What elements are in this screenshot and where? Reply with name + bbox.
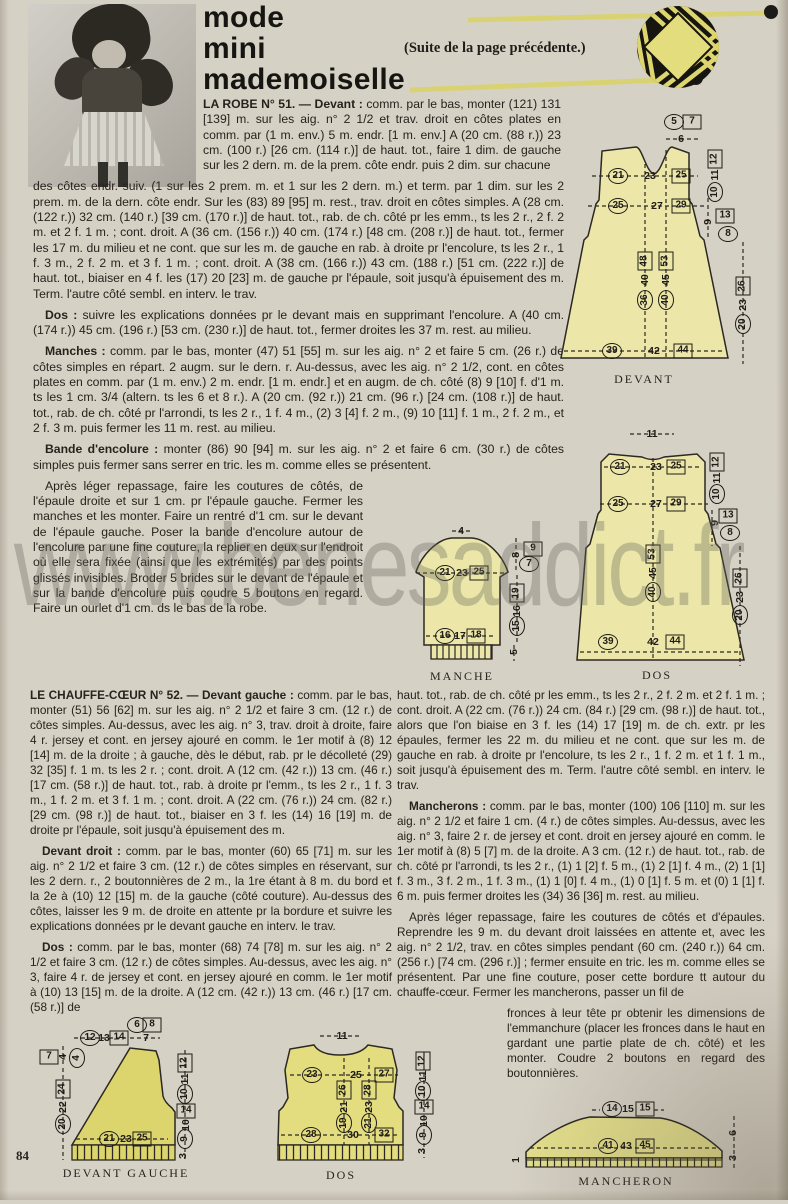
diagram-measure: 27 [651,200,663,212]
diagram-measure: 43 [620,1140,632,1152]
diagram-measure: 44 [666,635,685,650]
diagram-measure: 12 [80,1030,100,1046]
paragraph-chauffe-finition: Après léger repassage, faire les couture… [397,910,765,1000]
diagram-measure: 39 [602,343,622,359]
diagram-measure: 14 [602,1101,622,1117]
diagram-measure: 4 [458,525,464,537]
diagram-measure: 19 [510,584,525,603]
diagram-measure: 27 [375,1068,394,1083]
paragraph-chauffe-mancherons: Mancherons : comm. par le bas, monter (1… [397,799,765,904]
diagram-measure: 26 [733,569,748,588]
diagram-measure: 39 [598,634,618,650]
chauffe-heading: LE CHAUFFE-CŒUR N° 52. — Devant gauche : [30,688,294,702]
diagram-measure: 22 [57,1101,69,1113]
diagram-measure: 41 [598,1138,618,1154]
diagram-measure: 20 [732,605,748,625]
diagram-measure: 10 [415,1081,431,1101]
diagram-measure: 25 [470,566,489,581]
diagram-measure: 7 [519,556,539,572]
diagram-measure: 9 [524,542,543,557]
schema-chauffe-dos: DOS 112325272621192823212830321211101410… [248,1012,482,1204]
diagram-measure: 3 [727,1155,739,1161]
diagram-measure: 42 [647,636,659,648]
diagram-measure: 13 [716,209,735,224]
diagram-measure: 23 [644,170,656,182]
paragraph-chauffe-dos: Dos : comm. par le bas, monter (68) 74 [… [30,940,392,1015]
paragraph-chauffe-devant-droit: Devant droit : comm. par le bas, monter … [30,844,392,934]
diagram-measure: 23 [734,591,746,603]
photo-girl-face [92,40,126,70]
schema-chauffe-mancheron: MANCHERON 141515414345631 [488,1076,788,1196]
schema-caption: DOS [326,1168,356,1183]
diagram-measure: 10 [707,182,723,202]
diagram-measure: 13 [719,509,738,524]
diagram-measure: 23 [302,1067,322,1083]
diagram-measure: 25 [667,460,686,475]
paragraph-robe-devant-suite: des côtes endr. suiv. (1 sur les 2 prem.… [33,179,564,301]
diagram-measure: 28 [362,1081,377,1100]
diagram-measure: 25 [350,1069,362,1081]
diagram-measure: 3 [416,1148,428,1154]
diagram-measure: 4 [69,1048,85,1068]
diagram-measure: 11 [336,1030,347,1042]
page-title: mode mini mademoiselle [203,2,405,95]
paragraph-chauffe-devant-gauche: LE CHAUFFE-CŒUR N° 52. — Devant gauche :… [30,688,392,838]
diagram-measure: 9 [702,219,714,225]
diagram-measure: 12 [708,150,723,169]
diagram-measure: 21 [610,459,630,475]
diagram-measure: 15 [636,1102,655,1117]
paragraph-chauffe-finition-suite: fronces à leur tête pr obtenir les dimen… [507,1006,765,1081]
diagram-measure: 40 [645,582,661,602]
diagram-measure: 45 [647,567,659,579]
diagram-measure: 48 [638,252,653,271]
diagram-measure: 1 [510,1157,522,1163]
diagram-measure: 10 [177,1084,193,1104]
schema-caption: DOS [642,668,672,683]
title-line: mini [203,33,405,64]
diagram-measure: 21 [99,1131,119,1147]
paragraph-robe-dos: Dos : suivre les explications données pr… [33,308,564,339]
diagram-measure: 11 [179,1073,191,1084]
diagram-measure: 15 [509,616,525,636]
diagram-measure: 20 [735,314,751,334]
diagram-measure: 25 [608,198,628,214]
diagram-measure: 21 [435,565,455,581]
diagram-measure: 40 [639,274,651,286]
diagram-measure: 7 [683,115,702,130]
diagram-measure: 23 [650,461,662,473]
diagram-measure: 20 [55,1114,71,1134]
diagram-measure: 45 [636,1139,655,1154]
diagram-measure: 24 [56,1080,71,1099]
diagram-measure: 25 [133,1132,152,1147]
diagram-measure: 42 [648,345,660,357]
diagram-measure: 45 [660,274,672,286]
schema-robe-devant: DEVANT 576212325252729484036534540121110… [538,106,786,392]
diagram-measure: 7 [40,1050,59,1065]
diagram-measure: 44 [674,344,693,359]
diagram-measure: 26 [337,1081,352,1100]
robe-heading: LA ROBE N° 51. — Devant : [203,97,363,111]
diagram-measure: 53 [659,252,674,271]
diagram-measure: 25 [672,169,691,184]
diagram-measure: 23 [737,299,749,311]
paragraph-robe-manches: Manches : comm. par le bas, monter (47) … [33,344,564,436]
diagram-measure: 15 [622,1103,634,1115]
diagram-measure: 14 [415,1100,434,1115]
diagram-measure: 25 [608,496,628,512]
title-line: mode [203,2,405,33]
diagram-measure: 18 [467,629,486,644]
diagram-measure: 8 [143,1018,162,1033]
diagram-measure: 11 [646,428,657,440]
diagram-measure: 6 [678,133,684,145]
diagram-measure: 12 [416,1052,431,1071]
diagram-measure: 8 [720,525,740,541]
diagram-measure: 36 [637,290,653,310]
diagram-measure: 29 [672,199,691,214]
diagram-measure: 40 [658,290,674,310]
schema-caption: MANCHE [430,669,494,684]
diagram-measure: 53 [646,545,661,564]
diagram-measure: 14 [110,1031,129,1046]
diagram-measure: 3 [177,1153,189,1159]
diagram-measure: 5 [664,114,684,130]
diagram-measure: 12 [710,453,725,472]
title-line: mademoiselle [203,64,405,95]
section-chauffe-coeur-left: LE CHAUFFE-CŒUR N° 52. — Devant gauche :… [30,688,392,1021]
schema-chauffe-devant-gauche: DEVANT GAUCHE 68121314774424222012111014… [18,1008,272,1194]
diagram-measure: 13 [98,1032,110,1044]
diagram-measure: 27 [650,498,662,510]
diagram-measure: 23 [363,1101,375,1113]
schema-caption: DEVANT [614,372,674,387]
diagram-measure: 4 [57,1054,69,1060]
diagram-measure: 16 [435,628,455,644]
schema-caption: MANCHERON [578,1174,673,1189]
paragraph-chauffe-dos-suite: haut. tot., rab. de ch. côté pr les emm.… [397,688,765,793]
diagram-measure: 26 [736,277,751,296]
paragraph-robe-finition: Après léger repassage, faire les couture… [33,479,363,617]
paragraph-robe-devant: LA ROBE N° 51. — Devant : comm. par le b… [203,97,561,173]
diagram-measure: 11 [711,472,723,483]
diagram-measure: 23 [120,1133,132,1145]
diagram-measure: 9 [416,1125,432,1145]
diagram-measure: 7 [143,1032,149,1044]
diagram-measure: 32 [375,1128,394,1143]
diagram-measure: 30 [347,1129,359,1141]
diagram-measure: 14 [177,1104,196,1119]
schema-robe-manche: MANCHE 42123251617189781916155 [380,514,568,686]
diagram-measure: 21 [608,168,628,184]
diagram-measure: 11 [417,1070,429,1081]
diagram-measure: 23 [456,567,468,579]
schema-caption: DEVANT GAUCHE [63,1166,190,1181]
diagram-measure: 11 [709,169,721,180]
diagram-measure: 17 [454,630,466,642]
diagram-measure: 12 [178,1054,193,1073]
diagram-measure: 8 [510,552,522,558]
diagram-measure: 28 [301,1127,321,1143]
diagram-measure: 6 [727,1130,739,1136]
diagram-measure: 8 [718,226,738,242]
diagram-measure: 9 [177,1129,193,1149]
continuation-note: (Suite de la page précédente.) [404,40,586,57]
diagram-measure: 29 [667,497,686,512]
paragraph-robe-bande-encolure: Bande d'encolure : monter (86) 90 [94] m… [33,442,564,473]
schema-robe-dos: DOS 112123252527295345403942441211109138… [552,420,788,686]
diagram-measure: 21 [338,1101,350,1113]
diagram-measure: 5 [508,649,520,655]
diagram-measure: 10 [709,484,725,504]
